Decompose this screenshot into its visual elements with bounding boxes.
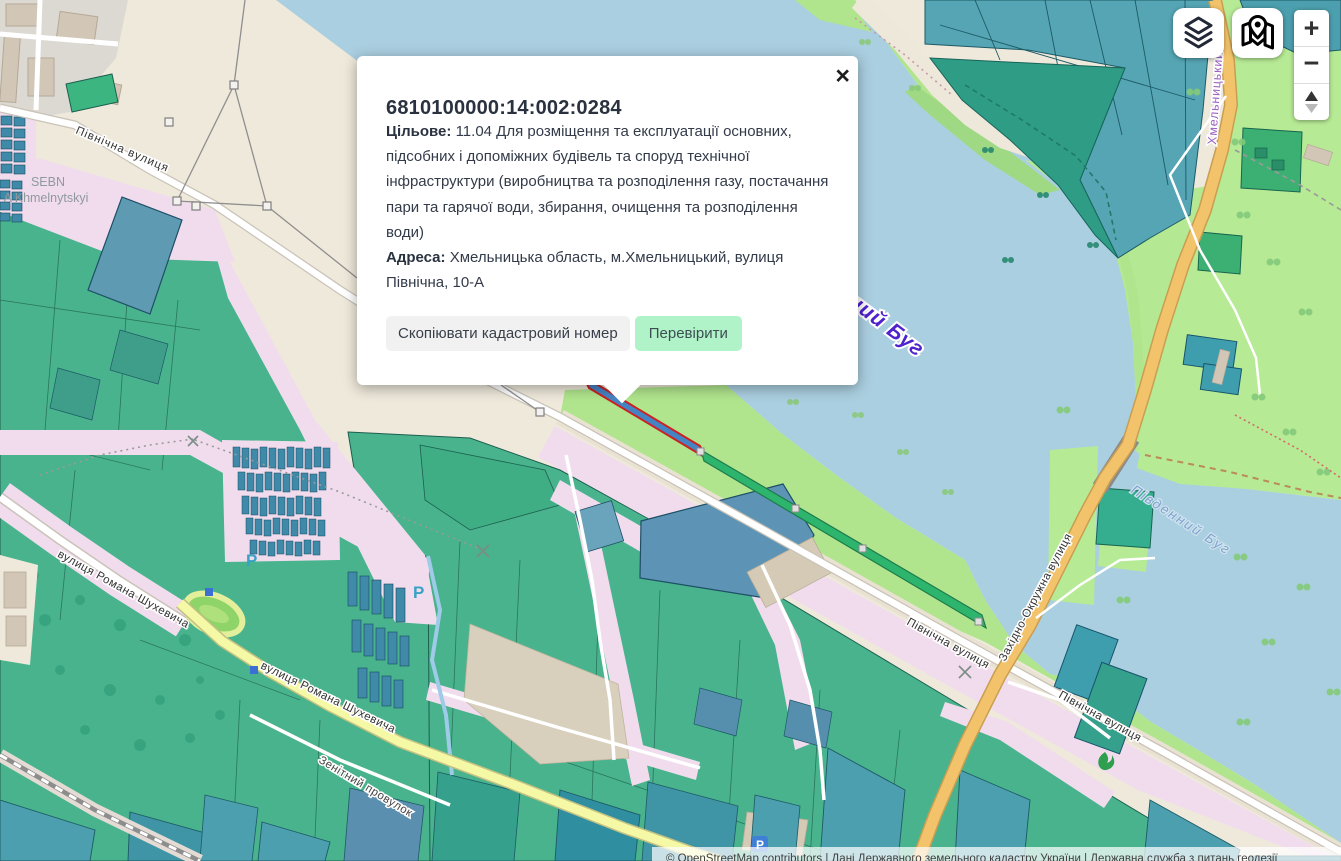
svg-text:P: P <box>246 551 257 570</box>
svg-text:A Khmelnytskyi: A Khmelnytskyi <box>4 191 89 205</box>
svg-text:P: P <box>413 583 424 602</box>
svg-text:SEBN: SEBN <box>31 175 65 189</box>
